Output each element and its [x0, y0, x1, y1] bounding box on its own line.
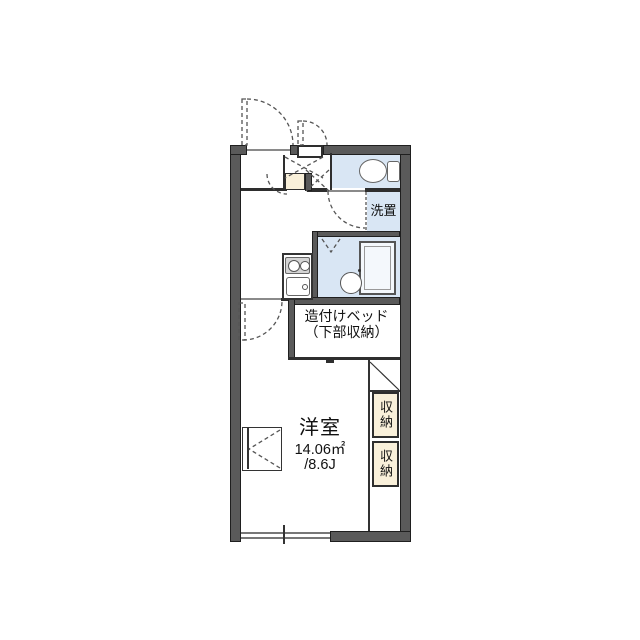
bathtub-inner-rim: [364, 246, 391, 290]
toilet-bowl-icon: [359, 159, 387, 183]
entrance-wall-stub: [305, 173, 312, 191]
entrance-main-door-arc-icon: [247, 99, 293, 145]
entrance-main-door-leaf: [242, 99, 247, 145]
washer-space-label: 洗置: [367, 192, 400, 231]
stove-icon: [285, 257, 310, 274]
entrance-step: [285, 173, 305, 190]
outer-wall-right: [400, 145, 411, 542]
sink-faucet-icon: [302, 284, 308, 290]
window-center-tick: [283, 525, 285, 544]
stove-burner-left-icon: [288, 260, 300, 272]
built-in-bed-line1: 造付けベッド: [295, 309, 398, 325]
washbasin-icon: [340, 272, 362, 294]
kitchen-counter: [282, 253, 313, 300]
entrance-side-door-frame: [297, 145, 323, 158]
closet-diagonal-line: [370, 362, 399, 390]
storage-box-lower: 収納: [372, 441, 399, 487]
bathtub-icon: [359, 241, 396, 295]
main-room-name-text: 洋室: [299, 417, 341, 439]
window-bottom-inner-line: [241, 537, 330, 539]
sink-icon: [286, 277, 310, 296]
bed-wall-bottom: [288, 357, 400, 360]
built-in-bed-line2: （下部収納）: [295, 325, 398, 341]
floor-plan: 収納 収納 洗置 造付けベッド （下部収納） 洋: [0, 0, 640, 640]
main-room-area-tatami: /8.6J: [284, 458, 356, 473]
toilet-left-partition: [330, 153, 332, 190]
fold-table-hinge-line: [247, 428, 249, 469]
washer-space-text: 洗置: [370, 204, 396, 219]
hall-wall-left: [241, 188, 287, 191]
main-room-name: 洋室: [292, 417, 348, 440]
stove-burner-right-icon: [300, 261, 310, 271]
bed-wall-left: [288, 297, 295, 360]
bath-faucet-dot-icon: [358, 269, 361, 272]
toilet-door-opening: [327, 190, 365, 192]
outer-wall-top-left: [230, 145, 247, 155]
toilet-tank-icon: [387, 161, 400, 182]
toilet-door-arc-icon: [328, 191, 365, 228]
storage-lower-label: 収納: [376, 449, 395, 479]
window-bottom-outer-line: [241, 532, 330, 534]
room-door-arc-icon: [243, 301, 282, 340]
bathroom-wall-top: [312, 231, 400, 237]
entrance-door-opening: [247, 149, 291, 151]
outer-wall-left: [230, 145, 241, 542]
storage-box-upper: 収納: [372, 392, 399, 438]
bed-wall-bottom-tick: [326, 357, 334, 363]
room-door-opening: [241, 298, 281, 300]
outer-wall-top-right: [323, 145, 411, 155]
outer-wall-bottom-right: [330, 531, 411, 542]
storage-upper-label: 収納: [376, 400, 395, 430]
main-room-area: 14.06㎡ /8.6J: [284, 443, 356, 473]
entrance-side-door-arc-icon: [303, 121, 327, 145]
main-room-area-sqm: 14.06㎡: [284, 443, 356, 458]
entrance-side-door-leaf: [298, 121, 303, 145]
fold-table: [242, 427, 282, 471]
closet-partition: [368, 360, 370, 531]
built-in-bed-label: 造付けベッド （下部収納）: [295, 309, 398, 340]
